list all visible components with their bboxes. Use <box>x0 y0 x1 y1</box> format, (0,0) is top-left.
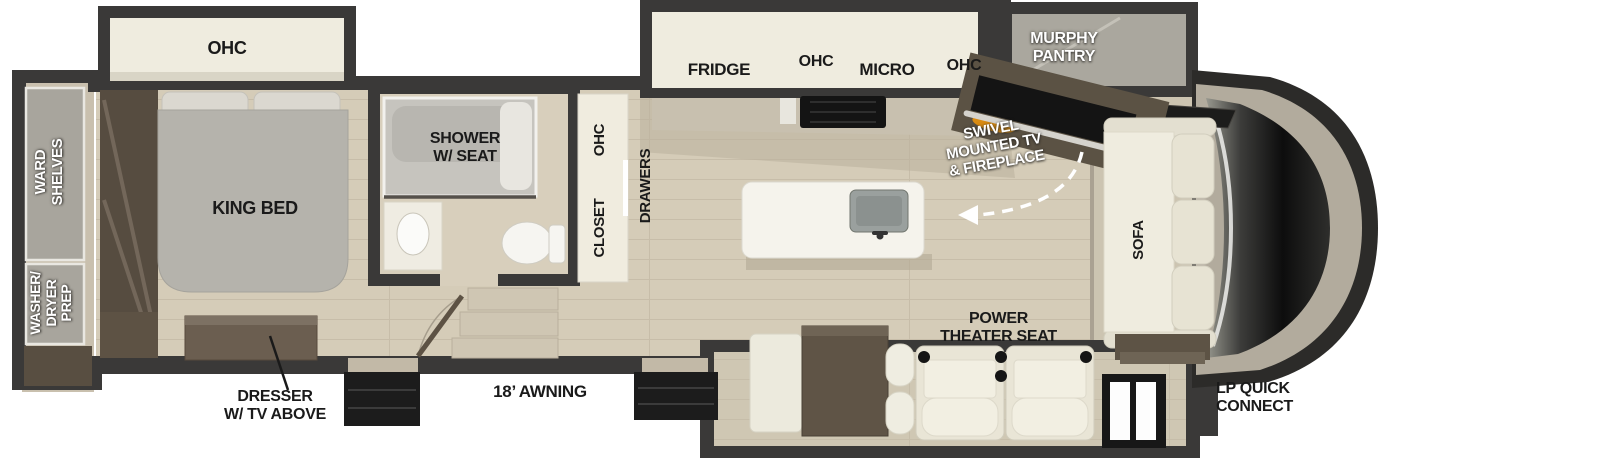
toilet-tank <box>549 225 565 263</box>
theater-seat-2-cushion <box>1014 360 1086 398</box>
counter-edge <box>780 98 796 124</box>
hall-step-1 <box>468 288 558 310</box>
fridge-label: FRIDGE <box>669 60 769 79</box>
dinette-table-edge <box>802 326 888 336</box>
dresser-top-edge <box>185 316 317 325</box>
murphy-pantry-label: MURPHY PANTRY <box>1002 30 1126 66</box>
bath-sink <box>397 213 429 255</box>
main-door-opening <box>348 358 418 372</box>
rear-bench <box>24 346 92 386</box>
bedroom-bench <box>100 312 158 358</box>
cupholder-2 <box>995 351 1007 363</box>
bedroom-slide-lip <box>110 72 344 81</box>
bedroom <box>100 90 348 390</box>
entry-steps-1 <box>344 372 420 426</box>
closet-handle <box>623 160 628 216</box>
closet-label: CLOSET <box>592 188 612 268</box>
rear-wall <box>12 70 26 390</box>
theater-seat-1-cushion <box>924 360 996 398</box>
bathroom-door-opening <box>440 274 498 286</box>
kitchen-ohc-right-label: OHC <box>934 57 994 75</box>
dinette-chair-2 <box>886 392 914 434</box>
dinette-chair-1 <box>886 344 914 386</box>
kitchen-ohc-left-label: OHC <box>786 53 846 71</box>
awning-label: 18’ AWNING <box>458 382 622 401</box>
sofa-cushion-3 <box>1172 266 1214 330</box>
theater-seat-2-back <box>1012 398 1088 436</box>
theater-seat-1-back <box>922 398 998 436</box>
cupholder-1 <box>918 351 930 363</box>
sofa-step-tread <box>1120 352 1205 364</box>
cupholder-3 <box>995 370 1007 382</box>
toilet-bowl <box>502 222 552 264</box>
bedroom-ohc-label: OHC <box>110 38 344 58</box>
island-faucet-arm <box>872 231 888 235</box>
dinette-table <box>802 326 888 436</box>
king-bed-label: KING BED <box>165 198 345 218</box>
drawers-label: DRAWERS <box>638 140 658 232</box>
shower-label: SHOWER W/ SEAT <box>390 130 540 166</box>
power-theater-seat-label: POWER THEATER SEAT <box>916 310 1081 346</box>
ward-shelves-label: WARD SHELVES <box>33 134 77 210</box>
closet-ohc-label: OHC <box>592 117 612 163</box>
kitchen-door-opening <box>642 358 708 372</box>
hall-step-2 <box>460 312 558 336</box>
micro-label: MICRO <box>844 60 930 79</box>
dresser-label: DRESSER W/ TV ABOVE <box>200 388 350 424</box>
lp-quick-connect-label: LP QUICK CONNECT <box>1216 380 1336 416</box>
sofa-label: SOFA <box>1131 210 1149 270</box>
sofa-cushion-2 <box>1172 200 1214 264</box>
entry-steps-2 <box>634 372 718 420</box>
hall-step-3 <box>452 338 558 358</box>
rear-cap-top-wall <box>12 70 100 83</box>
slide-window-pane-2 <box>1136 382 1156 440</box>
island-sink-basin <box>856 196 902 226</box>
dinette-bench <box>750 334 802 432</box>
floorplan-canvas: OHC WARD SHELVES WASHER/ DRYER PREP KING… <box>0 0 1600 467</box>
washer-dryer-prep-label: WASHER/ DRYER PREP <box>28 263 82 343</box>
cupholder-4 <box>1080 351 1092 363</box>
sofa-cushion-1 <box>1172 134 1214 198</box>
slide-window-pane-1 <box>1110 382 1130 440</box>
